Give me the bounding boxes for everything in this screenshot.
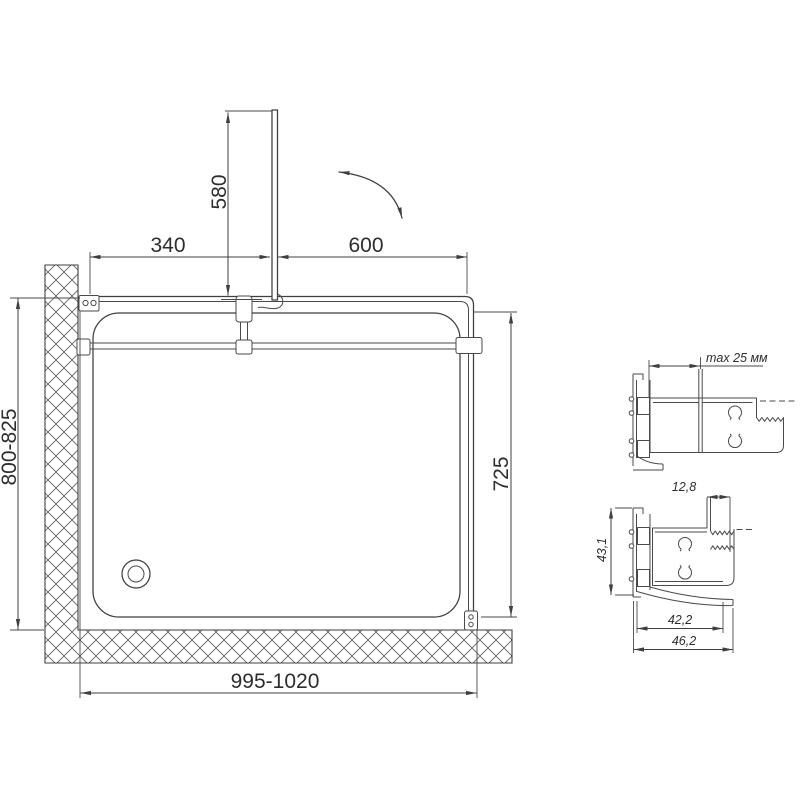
bar-glass-bracket bbox=[456, 338, 482, 354]
dim-label-door-opening: 600 bbox=[348, 234, 383, 257]
dim-43-1: 43,1 bbox=[595, 508, 634, 595]
drain bbox=[122, 560, 150, 588]
drawing-canvas: 580 340 600 800-825 725 995-1020 bbox=[0, 0, 800, 800]
dim-label-profile-height: 43,1 bbox=[595, 538, 609, 562]
glass-panel-edge bbox=[699, 369, 702, 452]
dim-46-2: 46,2 bbox=[634, 601, 734, 653]
dim-340: 340 bbox=[90, 234, 270, 294]
dim-max-25: max 25 мм bbox=[649, 351, 768, 397]
dim-label-side-depth: 800-825 bbox=[0, 408, 21, 485]
dim-label-total-width: 995-1020 bbox=[231, 670, 320, 693]
dim-label-glass-slot: 12,8 bbox=[672, 480, 696, 494]
dim-580: 580 bbox=[208, 111, 272, 300]
plan-view: 580 340 600 800-825 725 995-1020 bbox=[0, 110, 517, 698]
door-panel bbox=[258, 110, 283, 309]
dim-label-inner-width: 42,2 bbox=[668, 613, 692, 627]
detail-frame-profile-section: 12,8 43,1 42,2 46,2 bbox=[595, 480, 753, 653]
door-swing-arrow bbox=[339, 172, 402, 218]
dim-label-inner-depth: 725 bbox=[490, 456, 513, 491]
dim-label-outer-width: 46,2 bbox=[672, 634, 696, 648]
dim-12-8: 12,8 bbox=[672, 480, 730, 552]
dim-label-max-adjust: max 25 мм bbox=[706, 351, 768, 365]
dim-label-door-panel: 580 bbox=[208, 174, 231, 209]
detail-wall-profile-section: max 25 мм bbox=[629, 351, 796, 470]
dim-600: 600 bbox=[278, 234, 467, 294]
panel-bottom-connector bbox=[465, 611, 478, 630]
wall-bracket bbox=[79, 296, 99, 312]
dim-42-2: 42,2 bbox=[637, 601, 723, 633]
dim-label-door-fixed: 340 bbox=[150, 234, 185, 257]
dim-725: 725 bbox=[473, 312, 517, 617]
technical-drawing-shower-enclosure: 580 340 600 800-825 725 995-1020 bbox=[0, 0, 800, 800]
